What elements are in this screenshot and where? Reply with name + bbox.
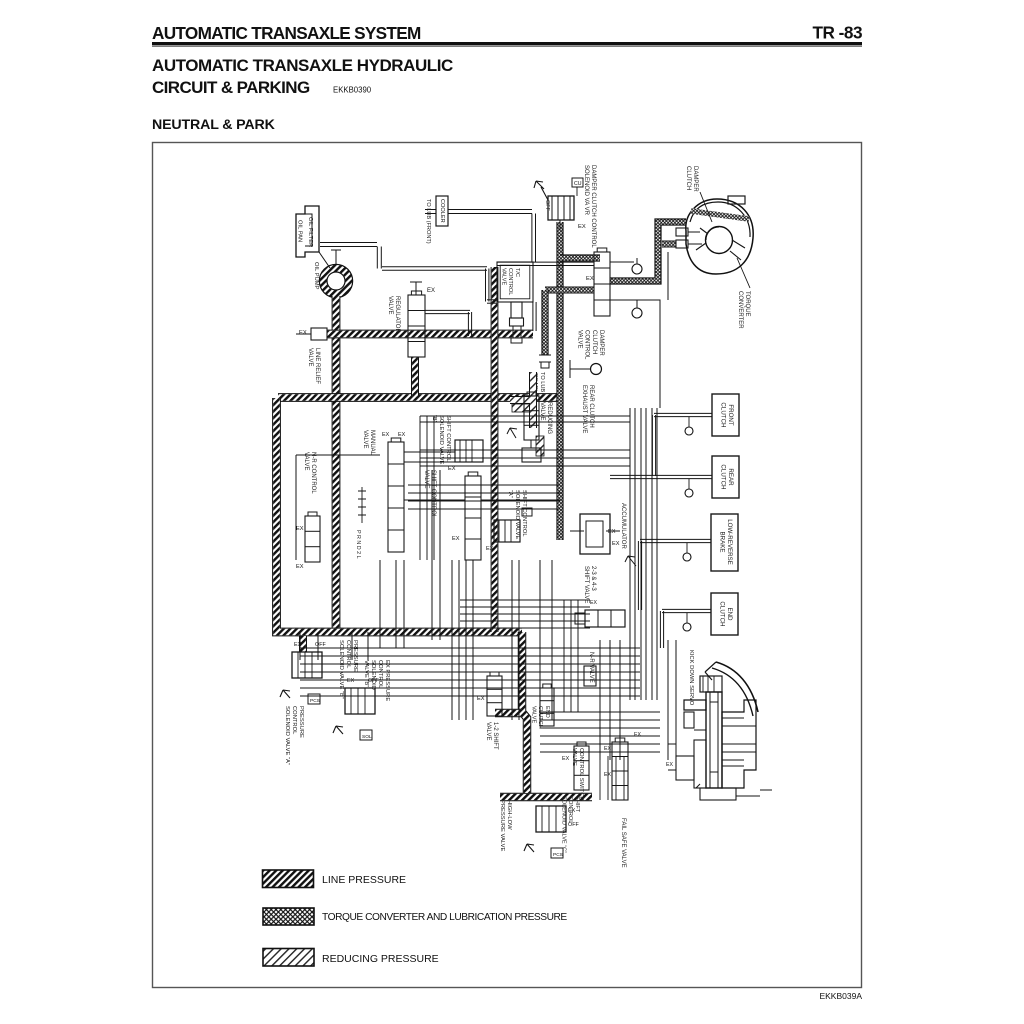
svg-text:EX: EX	[604, 746, 611, 752]
svg-text:KICK DOWN SERVO: KICK DOWN SERVO	[688, 650, 694, 706]
svg-text:EKKB0390: EKKB0390	[333, 86, 372, 95]
svg-text:EX: EX	[608, 529, 616, 535]
svg-text:SOLENOID: SOLENOID	[370, 660, 376, 690]
svg-text:SOLENOID VALVE “B”: SOLENOID VALVE “B”	[338, 640, 344, 699]
svg-text:EX: EX	[612, 541, 620, 547]
svg-text:AUTOMATIC TRANSAXLE SYSTEM: AUTOMATIC TRANSAXLE SYSTEM	[152, 23, 421, 43]
svg-text:EX: EX	[398, 432, 406, 438]
svg-text:CONTROL: CONTROL	[567, 796, 573, 823]
svg-text:T/C: T/C	[514, 268, 520, 277]
svg-text:CONTROL SWITCH: CONTROL SWITCH	[578, 748, 584, 801]
svg-text:LINE RELIEF: LINE RELIEF	[314, 348, 320, 384]
svg-text:FRONT: FRONT	[727, 404, 734, 426]
svg-text:PRESSURE: PRESSURE	[352, 640, 358, 672]
svg-text:FAIL SAFE VALVE: FAIL SAFE VALVE	[620, 818, 626, 868]
svg-text:EX: EX	[590, 600, 597, 606]
svg-text:REAR CLUTCH: REAR CLUTCH	[588, 385, 594, 428]
svg-text:CU: CU	[574, 181, 582, 187]
svg-text:CONTROL: CONTROL	[291, 706, 297, 735]
svg-text:EX: EX	[296, 564, 304, 570]
svg-text:EX PRESSURE: EX PRESSURE	[384, 660, 390, 701]
svg-text:2-3 & 4-3: 2-3 & 4-3	[590, 566, 596, 591]
svg-text:VALVE: VALVE	[485, 722, 491, 740]
svg-text:SHIFT: SHIFT	[574, 796, 580, 813]
svg-text:PCS: PCS	[310, 698, 320, 704]
svg-text:CLUTCH: CLUTCH	[685, 166, 691, 190]
svg-text:EX: EX	[299, 330, 307, 336]
svg-text:REGULATOR: REGULATOR	[394, 296, 400, 333]
svg-text:PRESSURE: PRESSURE	[298, 706, 304, 738]
svg-text:EX: EX	[382, 432, 390, 438]
svg-text:CLUTCH: CLUTCH	[537, 706, 543, 729]
svg-text:LOW-REVERSE: LOW-REVERSE	[726, 519, 733, 565]
svg-text:COOLER: COOLER	[439, 199, 445, 223]
svg-text:EX: EX	[452, 536, 460, 542]
svg-text:VALVE: VALVE	[362, 430, 368, 448]
svg-text:TORQUE: TORQUE	[744, 291, 750, 317]
svg-text:P R N D 2 L: P R N D 2 L	[355, 530, 361, 559]
svg-text:SOL: SOL	[362, 734, 372, 740]
svg-text:VALVE: VALVE	[423, 470, 429, 488]
svg-text:NEUTRAL & PARK: NEUTRAL & PARK	[152, 117, 276, 133]
svg-text:EX: EX	[578, 224, 586, 230]
svg-text:VALVE: VALVE	[539, 402, 545, 420]
svg-text:EX: EX	[486, 546, 494, 552]
svg-text:CONTROL: CONTROL	[584, 330, 590, 360]
svg-text:CLUTCH: CLUTCH	[591, 330, 597, 354]
svg-text:EX: EX	[562, 756, 570, 762]
svg-text:CLUTCH: CLUTCH	[720, 464, 727, 489]
svg-text:CIRCUIT & PARKING: CIRCUIT & PARKING	[152, 78, 310, 97]
svg-text:EX: EX	[294, 642, 302, 648]
svg-text:“A”: “A”	[507, 490, 513, 498]
svg-text:END: END	[544, 706, 550, 718]
svg-text:OIL PUMP: OIL PUMP	[313, 262, 319, 290]
svg-text:N-R VALVE: N-R VALVE	[588, 652, 594, 683]
svg-text:CONVERTER: CONVERTER	[737, 291, 743, 329]
svg-text:SOLENOID VALVE: SOLENOID VALVE	[514, 490, 520, 540]
svg-text:AUTOMATIC TRANSAXLE HYDRAULIC: AUTOMATIC TRANSAXLE HYDRAULIC	[152, 56, 453, 75]
svg-text:SHIFT CONTROL: SHIFT CONTROL	[430, 470, 436, 519]
svg-text:REDUCING PRESSURE: REDUCING PRESSURE	[322, 953, 439, 965]
svg-text:EX: EX	[347, 678, 355, 684]
svg-text:OFF: OFF	[544, 200, 550, 211]
svg-text:OFF: OFF	[315, 642, 326, 648]
svg-text:CONTROL: CONTROL	[507, 268, 513, 295]
svg-text:EX: EX	[634, 732, 641, 738]
svg-text:TO LUB (FRONT): TO LUB (FRONT)	[425, 199, 431, 244]
svg-text:CLUTCH: CLUTCH	[719, 601, 726, 626]
svg-text:HIGH-LOW: HIGH-LOW	[506, 800, 512, 830]
svg-text:EX: EX	[666, 762, 673, 768]
svg-text:SOLENOID VALVE “C”: SOLENOID VALVE “C”	[560, 796, 566, 853]
svg-text:VALVE: VALVE	[576, 330, 582, 348]
svg-text:TORQUE CONVERTER AND LUBRICATI: TORQUE CONVERTER AND LUBRICATION PRESSUR…	[322, 912, 567, 923]
svg-text:CONTROL: CONTROL	[377, 660, 383, 689]
svg-text:OIL PAN: OIL PAN	[297, 220, 303, 242]
svg-text:VALVE: VALVE	[387, 296, 393, 314]
svg-text:VALVE “B”: VALVE “B”	[363, 660, 369, 687]
svg-text:VALVE: VALVE	[571, 748, 577, 766]
svg-text:END: END	[726, 607, 733, 621]
svg-text:TO LUB: TO LUB	[539, 372, 545, 392]
svg-text:EX: EX	[448, 466, 456, 472]
svg-text:EX: EX	[296, 526, 304, 532]
svg-text:LINE PRESSURE: LINE PRESSURE	[322, 874, 406, 886]
svg-text:REDUCING: REDUCING	[546, 402, 552, 434]
svg-text:SOLENOID VA VR: SOLENOID VA VR	[583, 165, 589, 216]
svg-text:VALVE: VALVE	[530, 706, 536, 723]
svg-text:VALVE: VALVE	[500, 268, 506, 285]
svg-text:EX: EX	[604, 772, 611, 778]
svg-text:ACCUMULATOR: ACCUMULATOR	[620, 503, 626, 549]
svg-text:N-R CONTROL: N-R CONTROL	[310, 452, 316, 494]
svg-text:EXHAUST VALVE: EXHAUST VALVE	[581, 385, 587, 433]
svg-text:MANUAL: MANUAL	[369, 430, 375, 456]
svg-text:DAMPER: DAMPER	[692, 166, 698, 192]
svg-text:DAMPER CLUTCH CONTROL: DAMPER CLUTCH CONTROL	[590, 165, 596, 248]
svg-text:TR -83: TR -83	[812, 23, 862, 43]
svg-text:REAR: REAR	[727, 468, 734, 486]
svg-text:CONTROL: CONTROL	[345, 640, 351, 669]
svg-text:SOLENOID VALVE “A”: SOLENOID VALVE “A”	[284, 706, 290, 765]
svg-text:SHIFT CONTROL: SHIFT CONTROL	[521, 490, 527, 537]
svg-text:EX: EX	[427, 288, 435, 294]
svg-text:EKKB039A: EKKB039A	[819, 991, 862, 1001]
svg-text:BRAKE: BRAKE	[719, 532, 726, 553]
svg-text:CLUTCH: CLUTCH	[720, 402, 727, 427]
svg-text:PRESSURE VALVE: PRESSURE VALVE	[499, 800, 505, 851]
svg-text:1-2 SHIFT: 1-2 SHIFT	[492, 722, 498, 750]
svg-text:SHIFT VALVE: SHIFT VALVE	[583, 566, 589, 603]
svg-text:EX: EX	[586, 276, 594, 282]
svg-text:OIL FILTER: OIL FILTER	[307, 217, 313, 247]
svg-text:EX: EX	[477, 696, 485, 702]
svg-text:VALVE: VALVE	[307, 348, 313, 366]
svg-text:DAMPER: DAMPER	[598, 330, 604, 356]
